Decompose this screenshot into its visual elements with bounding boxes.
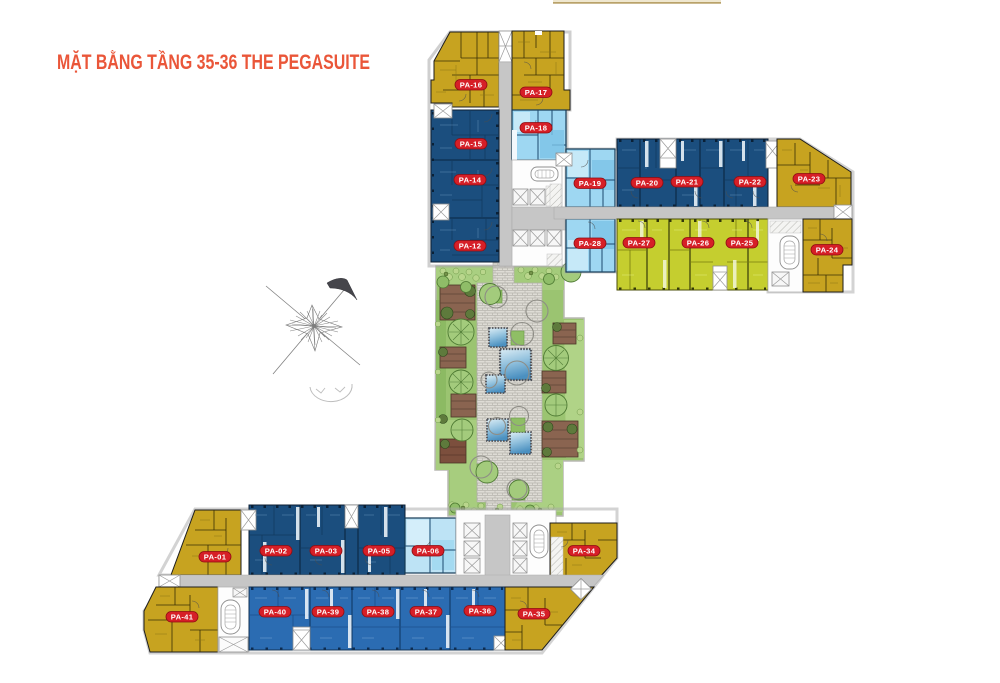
- svg-text:PA-21: PA-21: [676, 178, 699, 187]
- svg-text:PA-01: PA-01: [204, 553, 227, 562]
- svg-text:PA-34: PA-34: [573, 547, 596, 556]
- svg-text:MẶT BẰNG TẦNG 35-36 THE PEGASU: MẶT BẰNG TẦNG 35-36 THE PEGASUITE: [57, 49, 370, 74]
- svg-text:PA-36: PA-36: [469, 607, 491, 616]
- svg-text:PA-20: PA-20: [636, 179, 658, 188]
- svg-text:PA-06: PA-06: [417, 547, 439, 556]
- svg-text:PA-14: PA-14: [459, 176, 482, 185]
- svg-text:PA-28: PA-28: [579, 239, 601, 248]
- svg-text:PA-03: PA-03: [315, 547, 337, 556]
- svg-text:PA-16: PA-16: [460, 81, 482, 90]
- svg-text:PA-12: PA-12: [459, 242, 481, 251]
- svg-text:PA-17: PA-17: [525, 88, 547, 97]
- svg-text:PA-37: PA-37: [415, 608, 437, 617]
- svg-text:PA-22: PA-22: [739, 178, 761, 187]
- svg-text:PA-15: PA-15: [460, 140, 483, 149]
- svg-text:PA-25: PA-25: [731, 239, 754, 248]
- svg-text:PA-35: PA-35: [523, 610, 546, 619]
- svg-text:PA-19: PA-19: [579, 179, 601, 188]
- svg-text:PA-41: PA-41: [171, 613, 194, 622]
- svg-text:PA-24: PA-24: [816, 246, 839, 255]
- svg-text:PA-23: PA-23: [798, 175, 820, 184]
- svg-text:PA-18: PA-18: [525, 124, 547, 133]
- svg-text:PA-27: PA-27: [628, 239, 650, 248]
- svg-text:PA-05: PA-05: [368, 547, 391, 556]
- svg-text:PA-26: PA-26: [687, 239, 709, 248]
- svg-text:PA-38: PA-38: [367, 608, 389, 617]
- svg-text:PA-40: PA-40: [264, 608, 286, 617]
- svg-text:PA-39: PA-39: [317, 608, 339, 617]
- svg-text:PA-02: PA-02: [265, 547, 287, 556]
